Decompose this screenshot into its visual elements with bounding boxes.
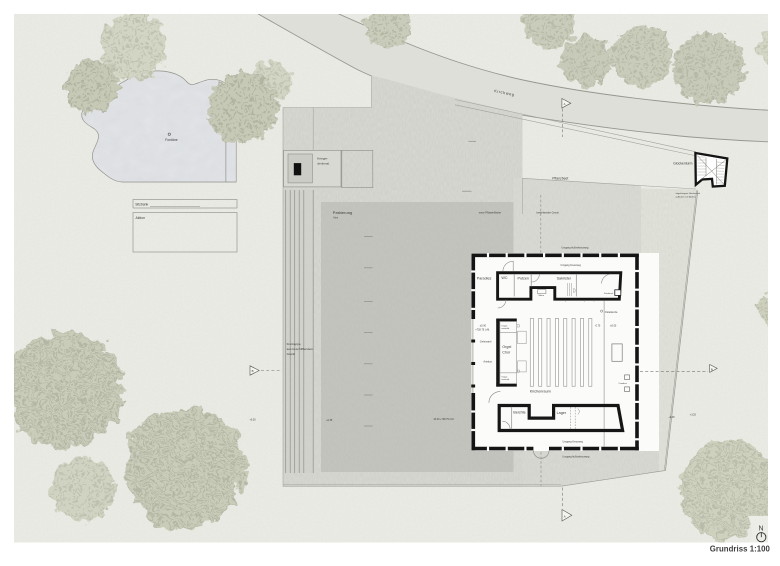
svg-text:N: N bbox=[758, 525, 763, 532]
svg-text:abgehängtes Glockenseil: abgehängtes Glockenseil bbox=[676, 192, 701, 195]
svg-text:Paradies: Paradies bbox=[477, 276, 492, 280]
svg-text:Umgang Außenkreuzweg: Umgang Außenkreuzweg bbox=[562, 247, 590, 250]
svg-text:Treppe: Treppe bbox=[501, 376, 507, 379]
svg-text:Antritus: Antritus bbox=[483, 361, 492, 364]
svg-text:Granit: Granit bbox=[287, 352, 296, 356]
svg-text:denkmal.: denkmal. bbox=[317, 161, 330, 165]
svg-text:+728.75 ü.M.: +728.75 ü.M. bbox=[475, 328, 490, 331]
svg-text:Umgang Kreuzweg: Umgang Kreuzweg bbox=[561, 264, 582, 267]
svg-text:±0.00: ±0.00 bbox=[610, 325, 617, 328]
svg-text:B: B bbox=[711, 367, 713, 371]
svg-text:±0.00: ±0.00 bbox=[480, 324, 487, 327]
svg-text:+0.35: +0.35 bbox=[326, 419, 333, 422]
svg-text:Omnibus: Omnibus bbox=[619, 383, 627, 385]
svg-text:Aktion: Aktion bbox=[136, 216, 146, 220]
svg-text:+3.25: +3.25 bbox=[669, 416, 676, 419]
svg-text:ausziehb.: ausziehb. bbox=[501, 328, 510, 330]
svg-text:Pflanzbeet: Pflanzbeet bbox=[552, 177, 568, 181]
svg-text:Treppe: Treppe bbox=[501, 325, 507, 328]
svg-text:Umgang Kreuzweg: Umgang Kreuzweg bbox=[563, 441, 584, 444]
svg-text:WC: WC bbox=[501, 276, 507, 280]
svg-text:+3.25: +3.25 bbox=[690, 414, 697, 417]
svg-text:Beichte: Beichte bbox=[513, 411, 525, 415]
svg-text:Orgel: Orgel bbox=[502, 345, 511, 349]
svg-text:Friedensl.: Friedensl. bbox=[604, 292, 614, 295]
svg-text:Grundriss 1:100: Grundriss 1:100 bbox=[710, 544, 771, 553]
svg-text:B: B bbox=[252, 369, 254, 373]
svg-text:Sakristei: Sakristei bbox=[557, 276, 571, 280]
svg-text:Gefensterl: Gefensterl bbox=[480, 341, 492, 344]
svg-text:Maria: Maria bbox=[539, 294, 545, 297]
svg-text:A: A bbox=[564, 514, 566, 518]
svg-text:Glockenturm: Glockenturm bbox=[673, 162, 692, 166]
svg-text:aufläuten von Außen: aufläuten von Außen bbox=[676, 195, 697, 198]
svg-text:+0.30: +0.30 bbox=[250, 418, 257, 421]
svg-text:Chor: Chor bbox=[502, 351, 511, 355]
svg-text:Osterkerze: Osterkerze bbox=[605, 310, 618, 314]
svg-text:Fontäne: Fontäne bbox=[165, 138, 178, 142]
svg-text:Krieger-: Krieger- bbox=[317, 157, 328, 161]
svg-text:Sitzbank: Sitzbank bbox=[135, 202, 148, 206]
svg-text:Umgang Außenkreuzweg: Umgang Außenkreuzweg bbox=[563, 455, 591, 458]
svg-text:aus beschliffendem: aus beschliffendem bbox=[287, 347, 314, 351]
svg-text:Freitreppe: Freitreppe bbox=[287, 342, 301, 346]
svg-text:Lager: Lager bbox=[557, 411, 567, 415]
svg-text:A: A bbox=[564, 102, 566, 106]
svg-text:±0.00 +728.75 ü.M: ±0.00 +728.75 ü.M bbox=[434, 418, 454, 421]
svg-text:Kirchenraum: Kirchenraum bbox=[530, 389, 551, 393]
svg-text:ausziehb.: ausziehb. bbox=[501, 379, 510, 381]
svg-text:-0.70: -0.70 bbox=[595, 325, 601, 328]
svg-text:Parkierung: Parkierung bbox=[333, 210, 352, 215]
svg-text:Putzen: Putzen bbox=[518, 276, 529, 280]
